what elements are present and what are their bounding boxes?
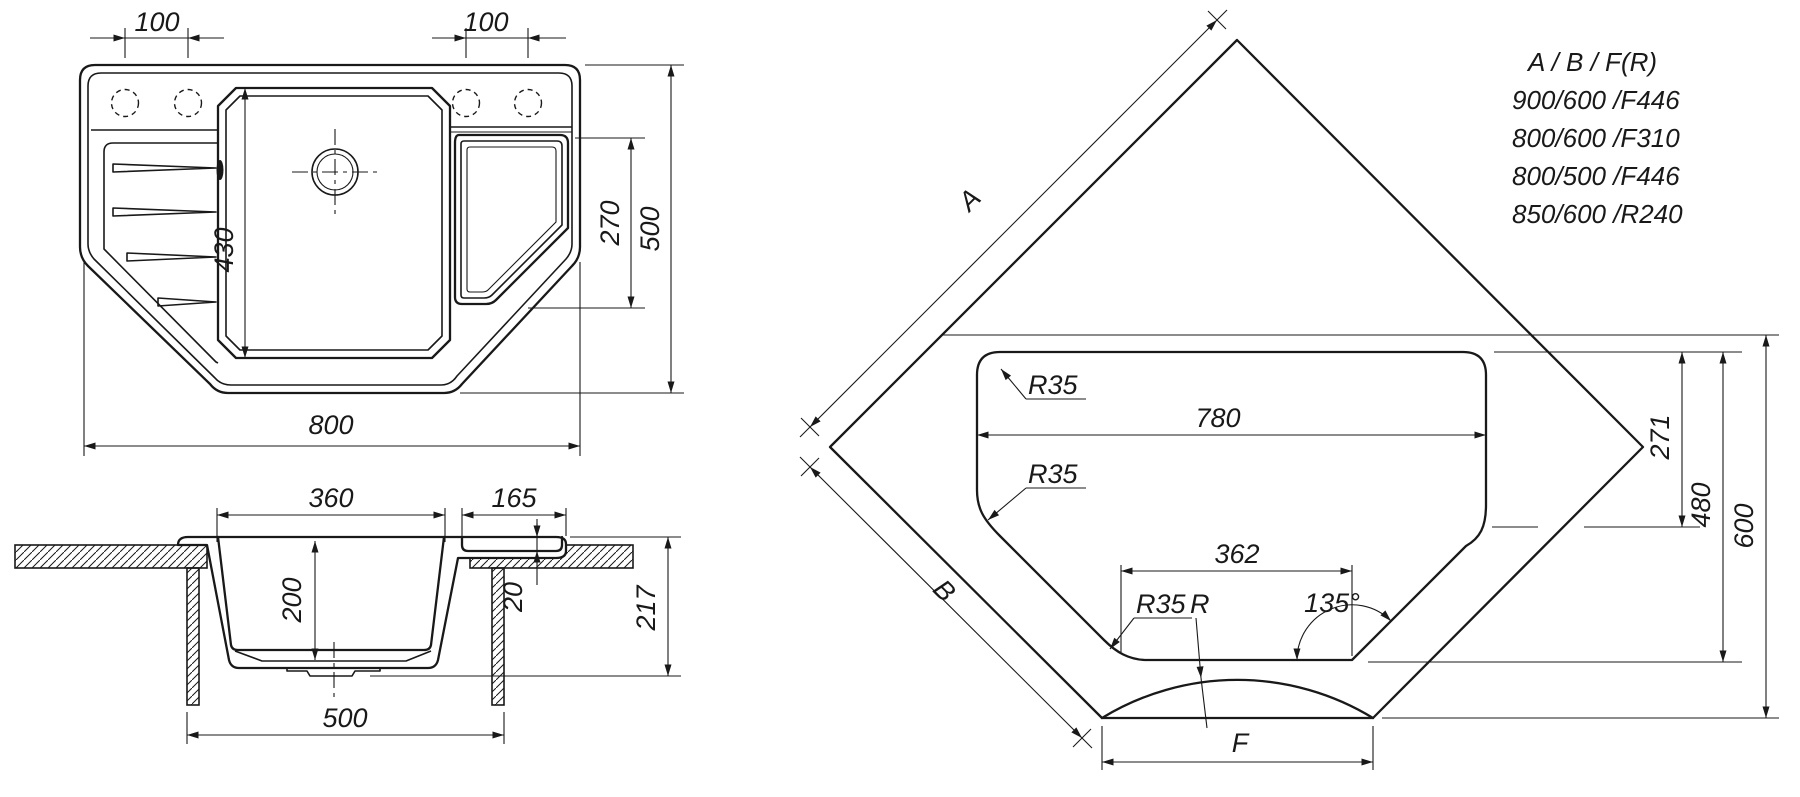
small-bowl-inner1 (461, 141, 562, 298)
angle-label: 135° (1304, 588, 1360, 618)
dim-label: 271 (1645, 414, 1675, 460)
dim-cutout-width: 780 (977, 403, 1486, 435)
dim-label: 20 (498, 582, 528, 613)
top-view: 100 100 430 270 500 (80, 7, 684, 456)
main-bowl-outer (218, 88, 450, 358)
dim-label: 800 (308, 410, 353, 440)
dim-edge-b: B (800, 457, 1092, 748)
radius-callout-left: R35 (988, 459, 1086, 520)
tap-hole (515, 90, 542, 117)
drainboard-ridge (113, 164, 216, 172)
dim-label: 600 (1729, 503, 1759, 548)
dim-main-bowl-length: 430 (209, 88, 245, 358)
drainboard-ridge (158, 298, 216, 306)
dim-label: A (951, 183, 986, 218)
cabinet-panel-left (187, 568, 199, 705)
size-table-header: A / B / F(R) (1526, 47, 1657, 77)
technical-drawing: 100 100 430 270 500 (0, 0, 1800, 797)
angle-callout: 135° (1297, 588, 1391, 660)
dim-hole-spacing-left: 100 (90, 7, 224, 58)
dim-cabinet-width: 500 (187, 703, 504, 744)
dim-label: 270 (595, 200, 625, 246)
dim-label: F (1232, 728, 1250, 758)
sink-outer-outline (80, 65, 580, 393)
dim-label: 780 (1195, 403, 1240, 433)
radius-callout-bottom: R35 (1110, 589, 1192, 649)
overflow-mark (217, 160, 224, 180)
dim-label: 217 (631, 584, 661, 631)
corner-cutout-view: 780 362 R35 R35 R35 R (800, 10, 1779, 770)
countertop-left (15, 545, 207, 568)
main-bowl-inner (226, 96, 442, 350)
drainboard-outline (104, 143, 218, 363)
dim-hole-spacing-right: 100 (432, 7, 566, 58)
dim-overall-depth: 600 (1729, 335, 1766, 718)
dim-label: 100 (134, 7, 179, 37)
size-table-row: 900/600 /F446 (1512, 85, 1680, 115)
dim-label: 480 (1686, 482, 1716, 527)
dim-small-bowl-width: 165 (462, 483, 566, 536)
front-radius-callout: R (1190, 589, 1210, 728)
size-table-row: 850/600 /R240 (1512, 199, 1683, 229)
small-bowl-inner2 (467, 147, 556, 292)
section-view: 360 165 20 200 217 (15, 483, 681, 744)
sink-inner-outline (88, 73, 572, 385)
radius-callout-top: R35 (1001, 369, 1086, 400)
radius-label: R35 (1028, 370, 1079, 400)
dim-label: B (927, 574, 961, 608)
dim-small-bowl-length: 270 (528, 138, 645, 308)
dim-bowl-top-width: 360 (217, 483, 445, 542)
radius-label: R35 (1136, 589, 1187, 619)
dim-label: 362 (1214, 539, 1259, 569)
size-table-row: 800/500 /F446 (1512, 161, 1680, 191)
tap-hole (175, 90, 202, 117)
size-table: A / B / F(R) 900/600 /F446 800/600 /F310… (1512, 47, 1683, 229)
dim-label: 500 (635, 206, 665, 251)
size-table-row: 800/600 /F310 (1512, 123, 1680, 153)
dim-label: 200 (277, 577, 307, 623)
dim-front-width: F (1102, 726, 1373, 770)
dim-label: 500 (322, 703, 367, 733)
tap-hole (453, 90, 480, 117)
dim-cutout-depth: 480 (1686, 352, 1723, 662)
dim-label: 360 (308, 483, 353, 513)
radius-label: R35 (1028, 459, 1079, 489)
dim-label: 100 (463, 7, 508, 37)
tap-hole (112, 90, 139, 117)
dim-label: 430 (209, 227, 239, 272)
drainboard-ridge (113, 208, 216, 216)
small-bowl-outer (455, 135, 568, 304)
drawing-canvas: 100 100 430 270 500 (0, 0, 1800, 797)
dim-right-inset: 271 (1645, 352, 1682, 527)
radius-label: R (1190, 589, 1210, 619)
drainboard-ridge (127, 253, 216, 261)
dim-edge-a: A (800, 10, 1227, 437)
front-arc (1102, 680, 1373, 718)
dim-label: 165 (491, 483, 537, 513)
